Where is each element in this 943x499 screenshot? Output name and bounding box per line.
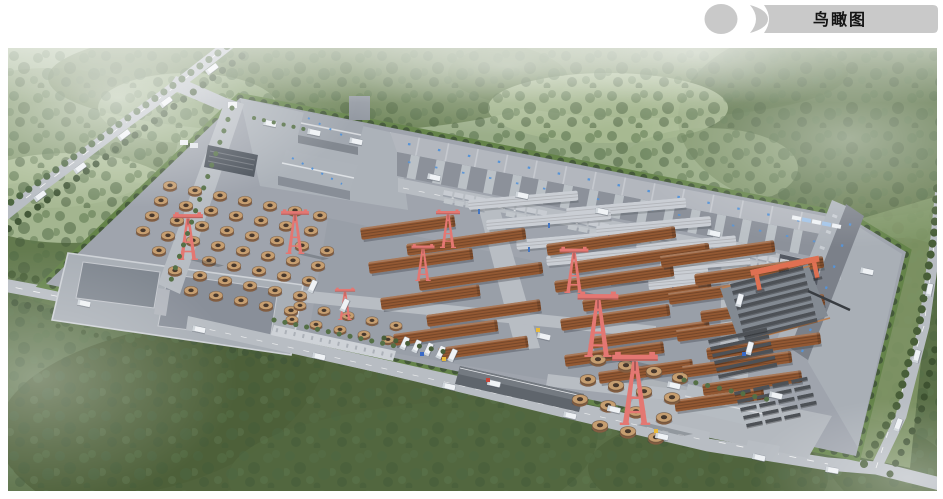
circle-icon <box>705 4 738 34</box>
page-title: 鸟瞰图 <box>813 10 867 29</box>
banner-notch-icon <box>750 5 768 33</box>
slide-canvas: 鸟瞰图 <box>0 0 943 499</box>
haze-overlay <box>8 48 937 491</box>
page-header: 鸟瞰图 <box>700 1 942 41</box>
aerial-render-image <box>8 48 937 491</box>
